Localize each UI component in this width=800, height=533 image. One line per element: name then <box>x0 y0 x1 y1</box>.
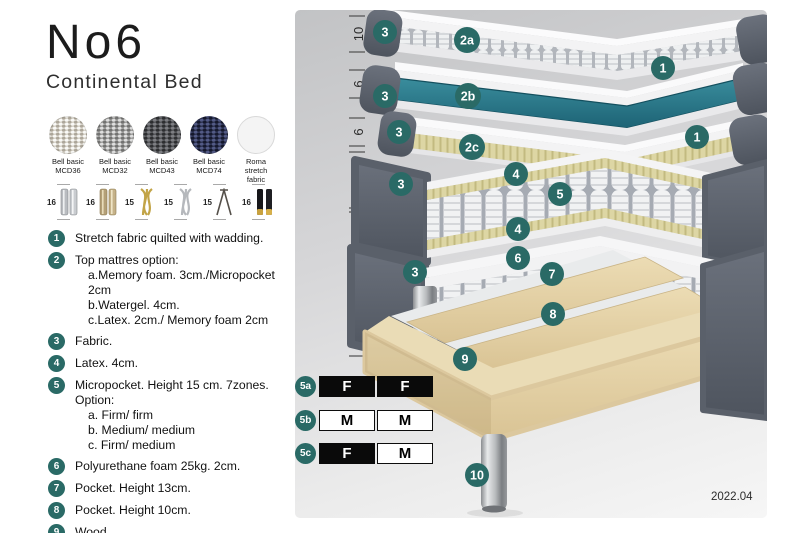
badge-6: 6 <box>506 246 530 270</box>
legend-item-6: 6 Polyurethane foam 25kg. 2cm. <box>48 458 290 475</box>
badge-2a: 2a <box>454 27 480 53</box>
badge-1: 1 <box>685 125 709 149</box>
fabric-swatch-mcd43: Bell basic MCD43 <box>141 116 183 184</box>
svg-text:9: 9 <box>462 353 469 367</box>
svg-text:3: 3 <box>382 26 389 40</box>
twisted-gold-leg-icon <box>136 188 158 216</box>
leg-option-hairpin: 15 <box>200 184 239 220</box>
fabric-swatch-label: Bell basic MCD74 <box>193 157 225 175</box>
firmness-table-5b: M M <box>319 410 433 431</box>
legend-badge-8: 8 <box>48 502 65 519</box>
legend-badge-1: 1 <box>48 230 65 247</box>
legend-sublist: a. Firm/ firm b. Medium/ medium c. Firm/… <box>88 408 290 453</box>
legend-item-1: 1 Stretch fabric quilted with wadding. <box>48 230 290 247</box>
legend-text: Wood. <box>75 525 110 533</box>
legend-text: Fabric. <box>75 334 112 348</box>
svg-text:1: 1 <box>694 131 701 145</box>
legend-item-8: 8 Pocket. Height 10cm. <box>48 502 290 519</box>
legend-text: Polyurethane foam 25kg. 2cm. <box>75 459 240 473</box>
svg-text:1: 1 <box>660 62 667 76</box>
fabric-swatch-circle <box>237 116 275 154</box>
svg-text:5: 5 <box>557 188 564 202</box>
fabric-swatch-roma: Roma stretch fabric <box>235 116 277 184</box>
badge-4: 4 <box>506 217 530 241</box>
legend-text: Pocket. Height 13cm. <box>75 481 191 495</box>
twisted-silver-leg-icon <box>175 188 197 216</box>
svg-text:8: 8 <box>550 308 557 322</box>
dim-label-topper-2a: 10 <box>351 27 366 41</box>
fabric-swatch-mcd74: Bell basic MCD74 <box>188 116 230 184</box>
legend-sublist: a.Memory foam. 3cm./Micropocket 2cm b.Wa… <box>88 268 290 328</box>
badge-2c: 2c <box>459 134 485 160</box>
page-subtitle: Continental Bed <box>46 71 203 94</box>
legend-item-5: 5 Micropocket. Height 15 cm. 7zones. Opt… <box>48 377 290 453</box>
page-root: No6 Continental Bed Bell basic MCD36 Bel… <box>0 0 800 533</box>
fabric-swatch-mcd36: Bell basic MCD36 <box>47 116 89 184</box>
fabric-swatch-label: Bell basic MCD32 <box>99 157 131 175</box>
legend-badge-2: 2 <box>48 252 65 269</box>
svg-text:7: 7 <box>549 268 556 282</box>
legend-text: Pocket. Height 10cm. <box>75 503 191 517</box>
badge-5: 5 <box>548 182 572 206</box>
legend-badge-4: 4 <box>48 355 65 372</box>
fabric-swatch-label: Bell basic MCD43 <box>146 157 178 175</box>
dim-label-topper-2c: 6 <box>351 128 366 135</box>
svg-text:6: 6 <box>515 252 522 266</box>
base-right-upholstery <box>703 248 767 418</box>
badge-4: 4 <box>504 162 528 186</box>
svg-text:3: 3 <box>412 266 419 280</box>
cylinder-brass-leg-icon <box>97 188 119 216</box>
legend-text: Micropocket. Height 15 cm. 7zones. Optio… <box>75 378 269 407</box>
firmness-row-5c: 5c F M <box>295 442 433 464</box>
fabric-swatch-circle <box>49 116 87 154</box>
leg-option-cylinder-brass: 16 <box>83 184 122 220</box>
diagram-panel: 10 6 6 23 cm 27 cm 16 cm <box>295 10 767 518</box>
badge-8: 8 <box>541 302 565 326</box>
svg-text:10: 10 <box>470 469 484 483</box>
fabric-swatch-mcd32: Bell basic MCD32 <box>94 116 136 184</box>
badge-2b: 2b <box>455 83 481 109</box>
firmness-row-5b: 5b M M <box>295 409 433 431</box>
firmness-badge-5a: 5a <box>295 376 316 397</box>
legend-text: Latex. 4cm. <box>75 356 138 370</box>
firmness-cell: M <box>377 443 433 464</box>
firmness-table-5a: F F <box>319 376 433 397</box>
firmness-badge-5b: 5b <box>295 410 316 431</box>
badge-3: 3 <box>389 172 413 196</box>
legend-text: Stretch fabric quilted with wadding. <box>75 231 263 245</box>
svg-text:4: 4 <box>515 223 522 237</box>
legend-item-4: 4 Latex. 4cm. <box>48 355 290 372</box>
fabric-swatch-label: Roma stretch fabric <box>235 157 277 184</box>
page-title: No6 <box>46 18 203 68</box>
legend-badge-9: 9 <box>48 524 65 533</box>
badge-3: 3 <box>373 20 397 44</box>
firmness-cell: F <box>319 376 375 397</box>
svg-text:2c: 2c <box>465 141 479 155</box>
badge-3: 3 <box>403 260 427 284</box>
hairpin-leg-icon <box>214 188 236 216</box>
firmness-table-5c: F M <box>319 443 433 464</box>
fabric-swatch-label: Bell basic MCD36 <box>52 157 84 175</box>
tapered-black-gold-leg-icon <box>253 188 275 216</box>
svg-text:3: 3 <box>398 178 405 192</box>
badge-3: 3 <box>387 120 411 144</box>
badge-1: 1 <box>651 56 675 80</box>
firmness-cell: F <box>319 443 375 464</box>
firmness-row-5a: 5a F F <box>295 375 433 397</box>
fabric-swatch-circle <box>190 116 228 154</box>
svg-text:2b: 2b <box>461 90 476 104</box>
brand-block: No6 Continental Bed <box>46 18 203 94</box>
leg-option-cylinder-silver: 16 <box>44 184 83 220</box>
badge-9: 9 <box>453 347 477 371</box>
firmness-cell: M <box>377 410 433 431</box>
svg-text:4: 4 <box>513 168 520 182</box>
svg-text:3: 3 <box>382 90 389 104</box>
leg-options-row: 16 16 15 15 <box>44 184 282 220</box>
svg-text:2a: 2a <box>460 34 475 48</box>
cylinder-silver-leg-icon <box>58 188 80 216</box>
fabric-swatch-row: Bell basic MCD36 Bell basic MCD32 Bell b… <box>47 116 279 184</box>
fabric-swatch-circle <box>96 116 134 154</box>
legend-item-9: 9 Wood. <box>48 524 290 533</box>
legend-badge-5: 5 <box>48 377 65 394</box>
leg-option-twisted-gold: 15 <box>122 184 161 220</box>
badge-10: 10 <box>465 463 489 487</box>
legend-item-3: 3 Fabric. <box>48 333 290 350</box>
badge-3: 3 <box>373 84 397 108</box>
firmness-cell: F <box>377 376 433 397</box>
version-date: 2022.04 <box>711 491 753 503</box>
firmness-badge-5c: 5c <box>295 443 316 464</box>
legend-text: Top mattres option: <box>75 253 179 267</box>
legend-list: 1 Stretch fabric quilted with wadding. 2… <box>48 230 290 533</box>
legend-badge-6: 6 <box>48 458 65 475</box>
leg-option-tapered-black: 16 <box>239 184 278 220</box>
svg-text:3: 3 <box>396 126 403 140</box>
legend-item-7: 7 Pocket. Height 13cm. <box>48 480 290 497</box>
leg-option-twisted-silver: 15 <box>161 184 200 220</box>
fabric-swatch-circle <box>143 116 181 154</box>
firmness-cell: M <box>319 410 375 431</box>
legend-item-2: 2 Top mattres option: a.Memory foam. 3cm… <box>48 252 290 328</box>
badge-7: 7 <box>540 262 564 286</box>
legend-badge-3: 3 <box>48 333 65 350</box>
legend-badge-7: 7 <box>48 480 65 497</box>
